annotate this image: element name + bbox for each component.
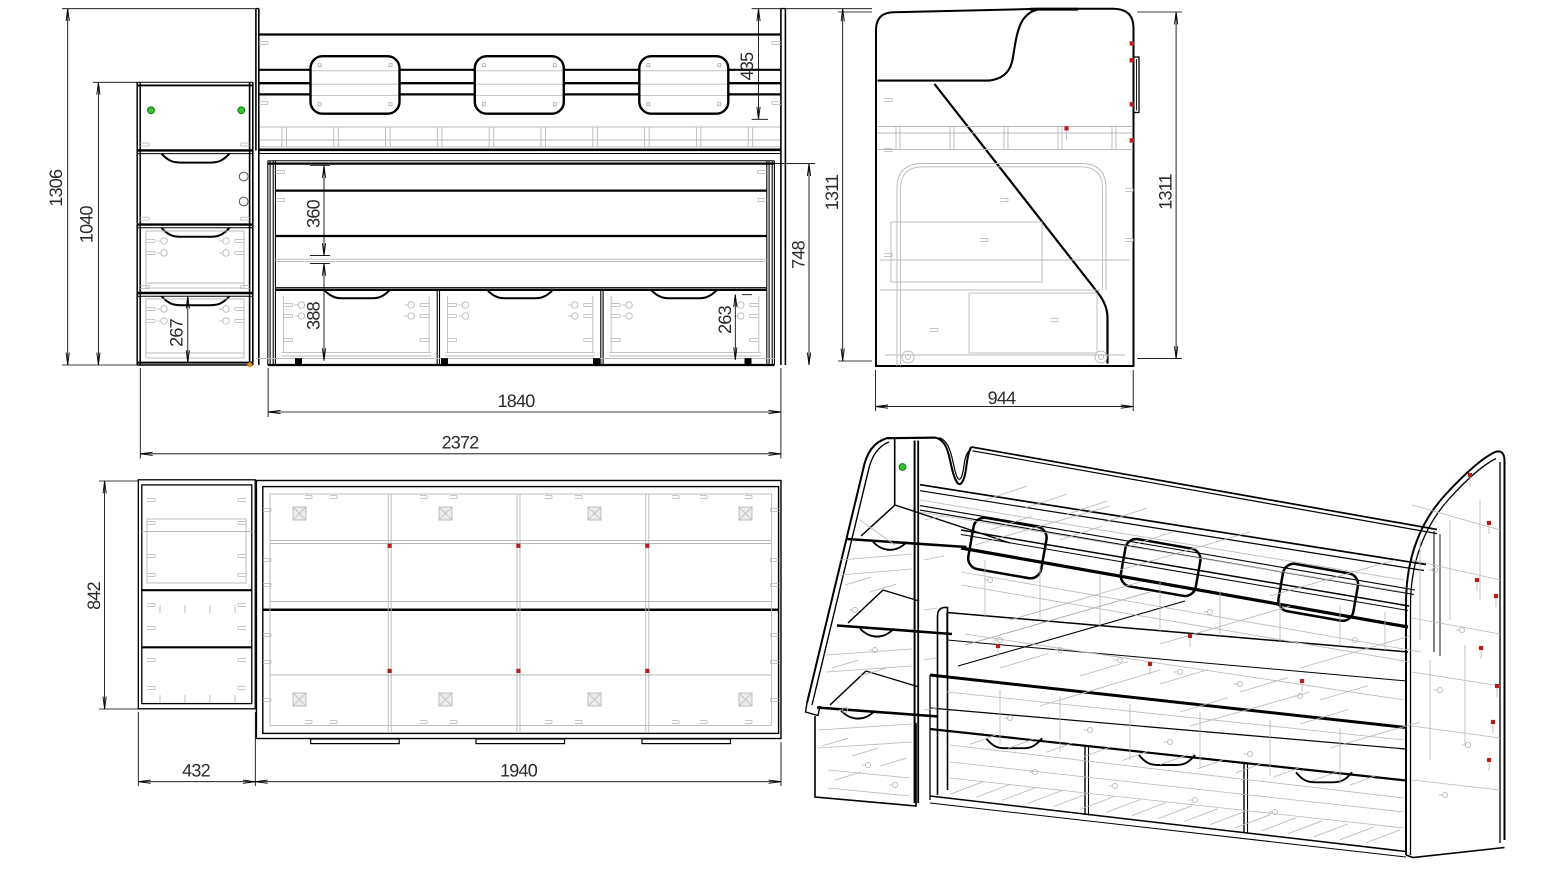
svg-text:435: 435 — [737, 52, 757, 80]
svg-text:842: 842 — [84, 581, 104, 609]
svg-text:1940: 1940 — [500, 761, 538, 781]
svg-text:388: 388 — [304, 301, 324, 329]
svg-text:2372: 2372 — [442, 433, 480, 453]
svg-text:360: 360 — [304, 199, 324, 227]
svg-text:1311: 1311 — [822, 174, 842, 210]
svg-text:1040: 1040 — [77, 205, 97, 243]
svg-text:432: 432 — [182, 761, 210, 781]
svg-text:1311: 1311 — [1156, 173, 1176, 209]
svg-text:267: 267 — [166, 318, 186, 346]
svg-text:263: 263 — [715, 305, 735, 333]
svg-text:944: 944 — [988, 388, 1016, 408]
svg-text:1840: 1840 — [498, 391, 536, 411]
svg-text:748: 748 — [789, 240, 809, 268]
svg-text:1306: 1306 — [46, 169, 66, 207]
